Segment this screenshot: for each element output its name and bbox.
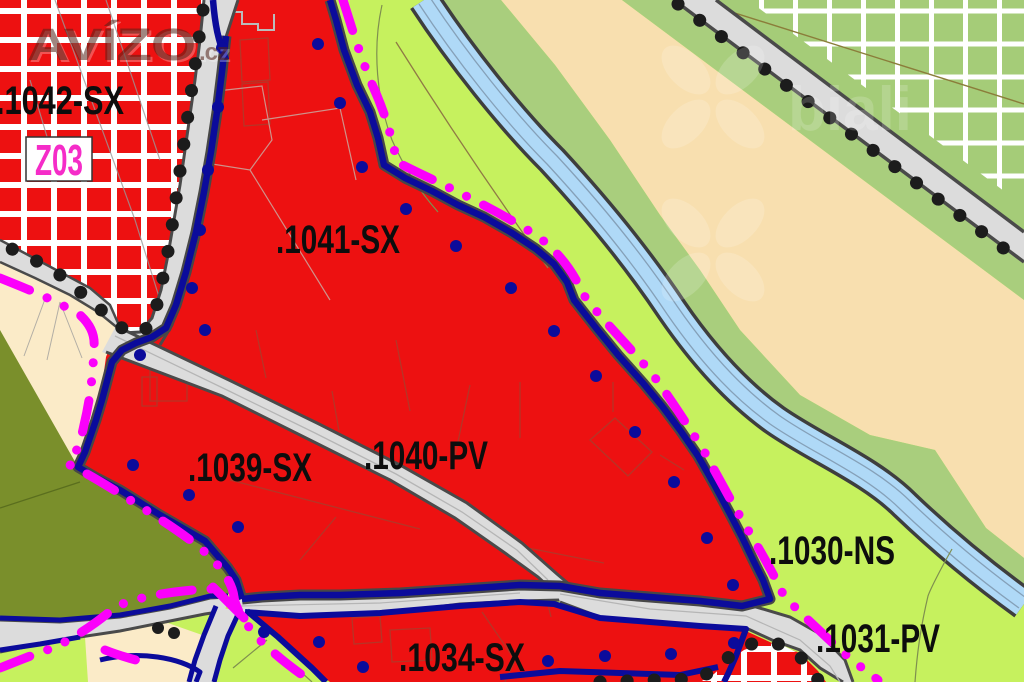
svg-text:.1040-PV: .1040-PV [364,434,488,478]
svg-text:AVÍZO: AVÍZO [27,19,195,70]
svg-text:.1042-SX: .1042-SX [0,79,124,123]
svg-text:.cz: .cz [199,39,229,66]
svg-text:.1041-SX: .1041-SX [276,218,400,262]
svg-text:.1034-SX: .1034-SX [399,636,525,680]
svg-text:biali: biali [788,75,912,144]
svg-text:.1031-PV: .1031-PV [816,617,940,661]
svg-text:Z03: Z03 [35,136,83,185]
svg-text:.1030-NS: .1030-NS [769,529,895,573]
svg-text:.1039-SX: .1039-SX [188,446,312,490]
